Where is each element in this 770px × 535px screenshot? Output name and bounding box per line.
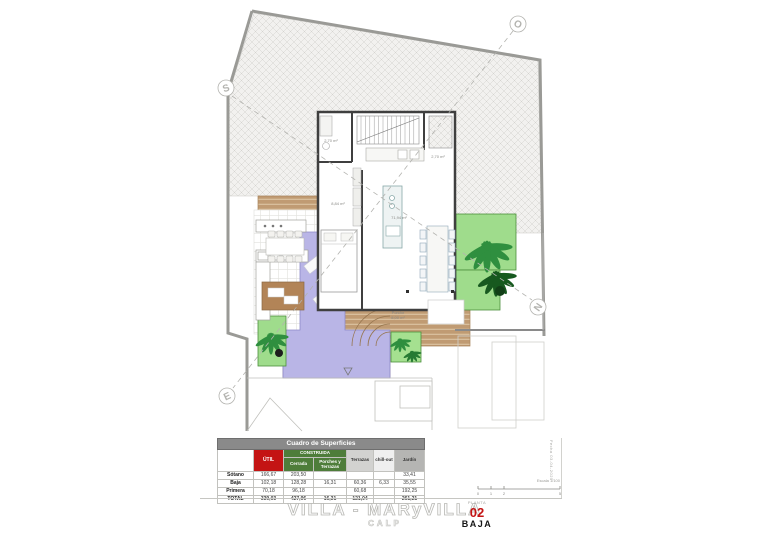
row-label: TOTAL xyxy=(218,496,254,504)
label-living: 71,94 m² xyxy=(391,215,407,220)
scale-tick-5: 5 xyxy=(559,491,562,496)
cell xyxy=(314,488,347,496)
sheet-block: PLANTA 02 BAJA xyxy=(452,501,502,529)
entry-steps xyxy=(429,116,452,148)
label-room-left: 2,70 m² xyxy=(324,138,338,143)
cell: 203,50 xyxy=(284,472,314,480)
building xyxy=(318,112,455,310)
cell: 60,36 xyxy=(347,480,374,488)
scale-tick-2: 2 xyxy=(503,491,506,496)
titleblock-divider xyxy=(200,498,562,499)
cell: 96,18 xyxy=(284,488,314,496)
cell: 128,28 xyxy=(284,480,314,488)
label-porch-2: 8,00 m² xyxy=(391,315,405,320)
table-row: Baja 102,18 128,28 16,31 60,36 6,33 35,5… xyxy=(218,480,425,488)
cell xyxy=(374,488,395,496)
surfaces-table: Cuadro de Superficies ÚTIL CONSTRUIDA Te… xyxy=(217,438,425,504)
table-title: Cuadro de Superficies xyxy=(218,439,425,450)
row-label: Primera xyxy=(218,488,254,496)
table-row: Primera 70,18 96,18 60,68 192,25 xyxy=(218,488,425,496)
cell: 166,67 xyxy=(254,472,284,480)
header-jardin: Jardín xyxy=(395,450,425,472)
cell: 16,31 xyxy=(314,480,347,488)
scale-tick-0: 0 xyxy=(477,491,480,496)
cell: 6,33 xyxy=(374,480,395,488)
header-terrazas: Terrazas xyxy=(347,450,374,472)
header-chillout: chill-out xyxy=(374,450,395,472)
sheet-number: 02 xyxy=(452,506,502,519)
header-construida: CONSTRUIDA xyxy=(284,450,347,458)
cell: 192,25 xyxy=(395,488,425,496)
cell xyxy=(374,472,395,480)
closet xyxy=(353,168,361,226)
header-porches: Porches y Terrazas xyxy=(314,458,347,472)
header-util: ÚTIL xyxy=(254,450,284,472)
indoor-dining-table xyxy=(420,226,455,292)
cell: 70,18 xyxy=(254,488,284,496)
planter-right xyxy=(456,214,517,310)
label-bedroom: 8,84 m² xyxy=(331,201,345,206)
cell: 35,55 xyxy=(395,480,425,488)
sheet-name: BAJA xyxy=(452,520,502,529)
floor-plan: S O N E 2,70 m² 2,70 m² 8,84 m² 71,94 m²… xyxy=(0,0,770,440)
table-row: Sótano 166,67 203,50 33,41 xyxy=(218,472,425,480)
table-corner-cell xyxy=(218,450,254,472)
cell xyxy=(314,472,347,480)
label-room-right: 2,70 m² xyxy=(431,154,445,159)
scale-tick-1: 1 xyxy=(490,491,493,496)
kitchen-counter xyxy=(366,148,424,161)
cell: 33,41 xyxy=(395,472,425,480)
staircase xyxy=(357,116,419,144)
drawing-sheet: S O N E 2,70 m² 2,70 m² 8,84 m² 71,94 m²… xyxy=(0,0,770,535)
planter-bottom xyxy=(389,332,421,363)
row-label: Baja xyxy=(218,480,254,488)
bed xyxy=(321,230,357,292)
cell xyxy=(347,472,374,480)
porch-table xyxy=(428,300,464,324)
header-cerrada: Cerrada xyxy=(284,458,314,472)
outdoor-dining-table xyxy=(262,282,304,310)
date-stamp: Fecha 03-04-2025 xyxy=(549,440,554,496)
row-label: Sótano xyxy=(218,472,254,480)
cell: 102,18 xyxy=(254,480,284,488)
cell: 60,68 xyxy=(347,488,374,496)
